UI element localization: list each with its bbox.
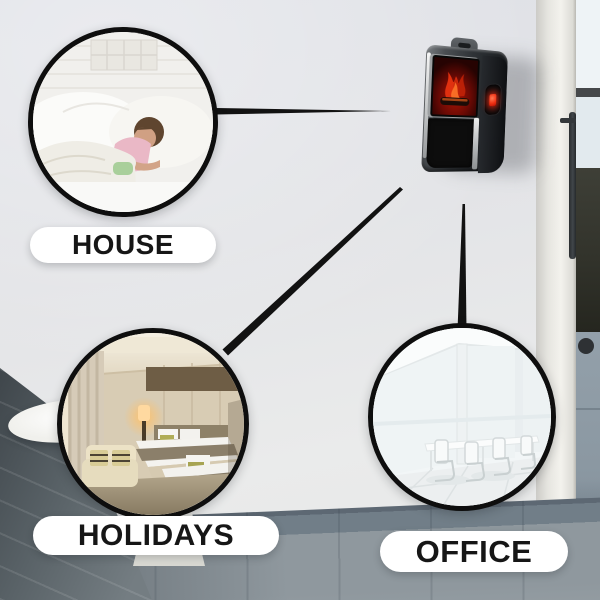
flame-effect-display — [430, 55, 480, 118]
led-display — [484, 84, 500, 115]
air-grille — [426, 118, 474, 168]
door-handle — [569, 112, 576, 259]
heater-body — [421, 44, 508, 172]
glass-panel — [576, 0, 600, 88]
glass-panel — [576, 97, 600, 168]
callout-circle-office — [368, 323, 556, 511]
dark-doorway — [576, 168, 600, 332]
label-house-text: HOUSE — [72, 229, 174, 261]
tile-joint — [576, 408, 600, 410]
product-collage: HOUSE — [0, 0, 600, 600]
holidays-scene-image — [62, 333, 244, 515]
office-scene-image — [373, 328, 551, 506]
callout-circle-holidays — [57, 328, 249, 520]
door-handle-bracket — [560, 118, 576, 123]
power-led — [489, 94, 496, 107]
label-house: HOUSE — [30, 227, 216, 263]
label-office-text: OFFICE — [416, 534, 533, 570]
heater-side-panel — [478, 55, 508, 173]
label-holidays-text: HOLIDAYS — [78, 519, 234, 553]
callout-circle-house — [28, 27, 218, 217]
chair-caster-wheel — [578, 338, 594, 354]
house-scene-image — [33, 32, 213, 212]
label-office: OFFICE — [380, 531, 568, 572]
wall-heater — [421, 34, 508, 174]
label-holidays: HOLIDAYS — [33, 516, 279, 555]
door-frame-bar — [576, 88, 600, 97]
